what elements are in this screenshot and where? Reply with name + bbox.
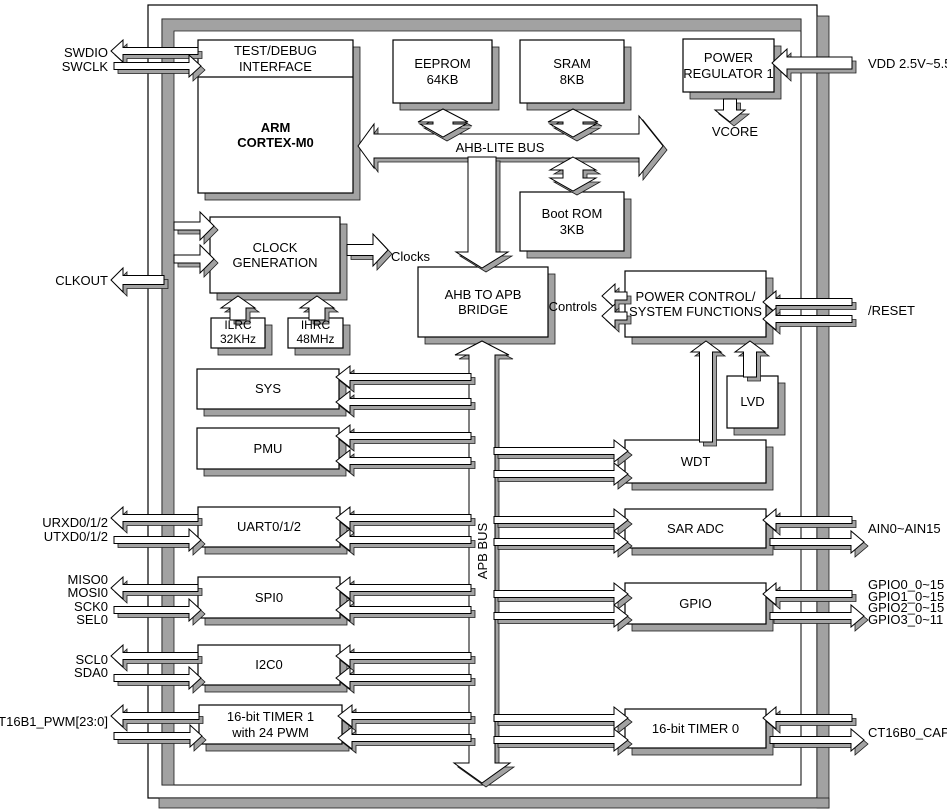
ahb-lite-bus-label: AHB-LITE BUS bbox=[430, 140, 570, 155]
pin-label-ct16b1-pwm: CT16B1_PWM[23:0] bbox=[0, 715, 108, 729]
block-arm-cortex-m0: ARM CORTEX-M0 bbox=[198, 77, 353, 193]
diagram-wiring-canvas bbox=[0, 0, 947, 812]
block-16bit-timer1: 16-bit TIMER 1 with 24 PWM bbox=[199, 705, 342, 744]
apb-bus-label: APB BUS bbox=[475, 516, 491, 586]
pin-label-urxd012: URXD0/1/2 bbox=[42, 516, 108, 530]
block-uart012: UART0/1/2 bbox=[198, 507, 340, 547]
block-pmu: PMU bbox=[197, 428, 339, 469]
block-power-control-system-functions: POWER CONTROL/ SYSTEM FUNCTIONS bbox=[625, 271, 766, 337]
block-power-regulator-1: POWER REGULATOR 1 bbox=[683, 39, 774, 92]
block-ilrc-32khz: ILRC 32KHz bbox=[211, 318, 265, 348]
pin-label-vdd: VDD 2.5V~5.5V bbox=[868, 57, 947, 71]
block-diagram: TEST/DEBUG INTERFACE ARM CORTEX-M0 EEPRO… bbox=[0, 0, 947, 812]
block-boot-rom: Boot ROM 3KB bbox=[520, 192, 624, 251]
clocks-label: Clocks bbox=[391, 249, 430, 264]
block-gpio: GPIO bbox=[625, 583, 766, 624]
block-clock-generation: CLOCK GENERATION bbox=[210, 217, 340, 293]
block-sar-adc: SAR ADC bbox=[625, 509, 766, 548]
block-eeprom: EEPROM 64KB bbox=[393, 40, 492, 103]
block-sram: SRAM 8KB bbox=[520, 40, 624, 103]
block-16bit-timer0: 16-bit TIMER 0 bbox=[625, 709, 766, 748]
pin-label-ain0-ain15: AIN0~AIN15 bbox=[868, 522, 941, 536]
pin-label-gpio3: GPIO3_0~11 bbox=[868, 613, 943, 627]
pin-label-sda0: SDA0 bbox=[74, 666, 108, 680]
block-test-debug-interface: TEST/DEBUG INTERFACE bbox=[198, 40, 353, 77]
block-lvd: LVD bbox=[727, 376, 778, 428]
block-ahb-to-apb-bridge: AHB TO APB BRIDGE bbox=[418, 267, 548, 337]
pin-label-mosi0: MOSI0 bbox=[68, 586, 108, 600]
block-spi0: SPI0 bbox=[198, 577, 340, 618]
vcore-label: VCORE bbox=[702, 124, 768, 139]
block-i2c0: I2C0 bbox=[198, 645, 340, 685]
pin-label-swdio: SWDIO bbox=[64, 46, 108, 60]
block-wdt: WDT bbox=[625, 440, 766, 483]
pin-label-sel0: SEL0 bbox=[76, 613, 108, 627]
block-ihrc-48mhz: IHRC 48MHz bbox=[288, 318, 343, 348]
pin-label-utxd012: UTXD0/1/2 bbox=[44, 530, 108, 544]
pin-label-ct16b0-cap0: CT16B0_CAP0 bbox=[868, 726, 947, 740]
pin-label-swclk: SWCLK bbox=[62, 60, 108, 74]
controls-label: Controls bbox=[549, 299, 597, 314]
pin-label-reset: /RESET bbox=[868, 304, 915, 318]
pin-label-clkout: CLKOUT bbox=[55, 274, 108, 288]
block-sys: SYS bbox=[197, 369, 339, 409]
